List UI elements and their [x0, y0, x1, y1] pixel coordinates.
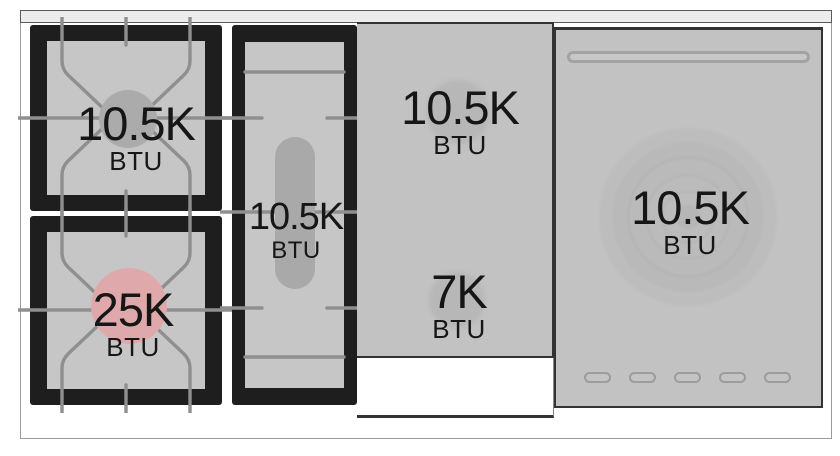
zone-griddle-front[interactable]: 7K BTU: [431, 268, 487, 342]
burner-unit-label: BTU: [432, 316, 486, 342]
zone-left-rear-gas-burner[interactable]: 10.5K BTU: [77, 100, 195, 174]
touch-control-pill[interactable]: [629, 372, 656, 383]
cooktop-diagram: 10.5K BTU 25K BTU 10.5K BTU 10.5K BTU 7K…: [0, 0, 840, 456]
zone-left-front-gas-burner[interactable]: 25K BTU: [93, 286, 174, 360]
touch-control-pill[interactable]: [719, 372, 746, 383]
zone-right-cooking-zone[interactable]: 10.5K BTU: [631, 184, 749, 258]
burner-power-label: 10.5K: [77, 100, 195, 147]
burner-unit-label: BTU: [433, 132, 487, 158]
burner-unit-label: BTU: [109, 148, 163, 174]
burner-unit-label: BTU: [663, 232, 717, 258]
touch-control-pill[interactable]: [674, 372, 701, 383]
zone-center-oval-burner[interactable]: 10.5K BTU: [249, 198, 343, 263]
zone-griddle-rear[interactable]: 10.5K BTU: [401, 84, 519, 158]
burner-unit-label: BTU: [106, 334, 160, 360]
touch-control-pill[interactable]: [764, 372, 791, 383]
griddle-front-edge: [357, 358, 554, 418]
burner-power-label: 25K: [93, 286, 174, 333]
right-zone-handle-bar: [567, 51, 810, 63]
touch-control-row: [584, 371, 791, 383]
burner-power-label: 10.5K: [631, 184, 749, 231]
burner-power-label: 10.5K: [401, 84, 519, 131]
burner-power-label: 10.5K: [249, 198, 343, 236]
touch-control-pill[interactable]: [584, 372, 611, 383]
burner-power-label: 7K: [431, 268, 487, 315]
burner-unit-label: BTU: [271, 239, 321, 263]
